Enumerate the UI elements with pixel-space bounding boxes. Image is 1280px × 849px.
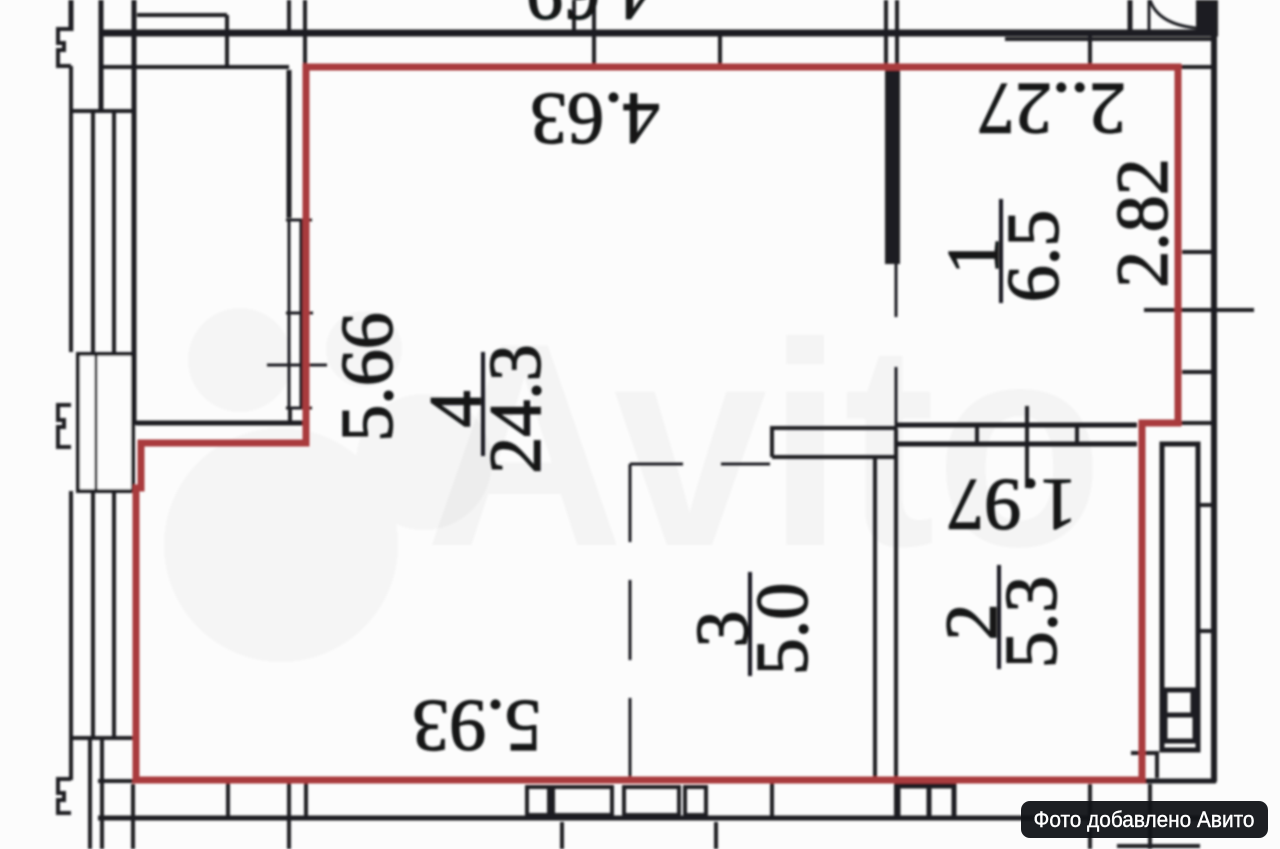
svg-text:6.5: 6.5 bbox=[993, 210, 1075, 303]
svg-text:5.93: 5.93 bbox=[412, 684, 542, 766]
svg-text:5.0: 5.0 bbox=[742, 583, 824, 676]
svg-text:4.63: 4.63 bbox=[530, 77, 660, 159]
svg-text:2..27: 2..27 bbox=[978, 67, 1126, 149]
svg-text:5.3: 5.3 bbox=[991, 576, 1073, 669]
svg-text:4.69: 4.69 bbox=[526, 0, 656, 35]
svg-text:Фото добавлено Авито: Фото добавлено Авито bbox=[1034, 807, 1255, 832]
svg-text:5.66: 5.66 bbox=[327, 312, 409, 442]
svg-text:2.82: 2.82 bbox=[1102, 158, 1184, 288]
svg-text:24.3: 24.3 bbox=[475, 344, 557, 474]
svg-text:1.97: 1.97 bbox=[947, 463, 1077, 545]
